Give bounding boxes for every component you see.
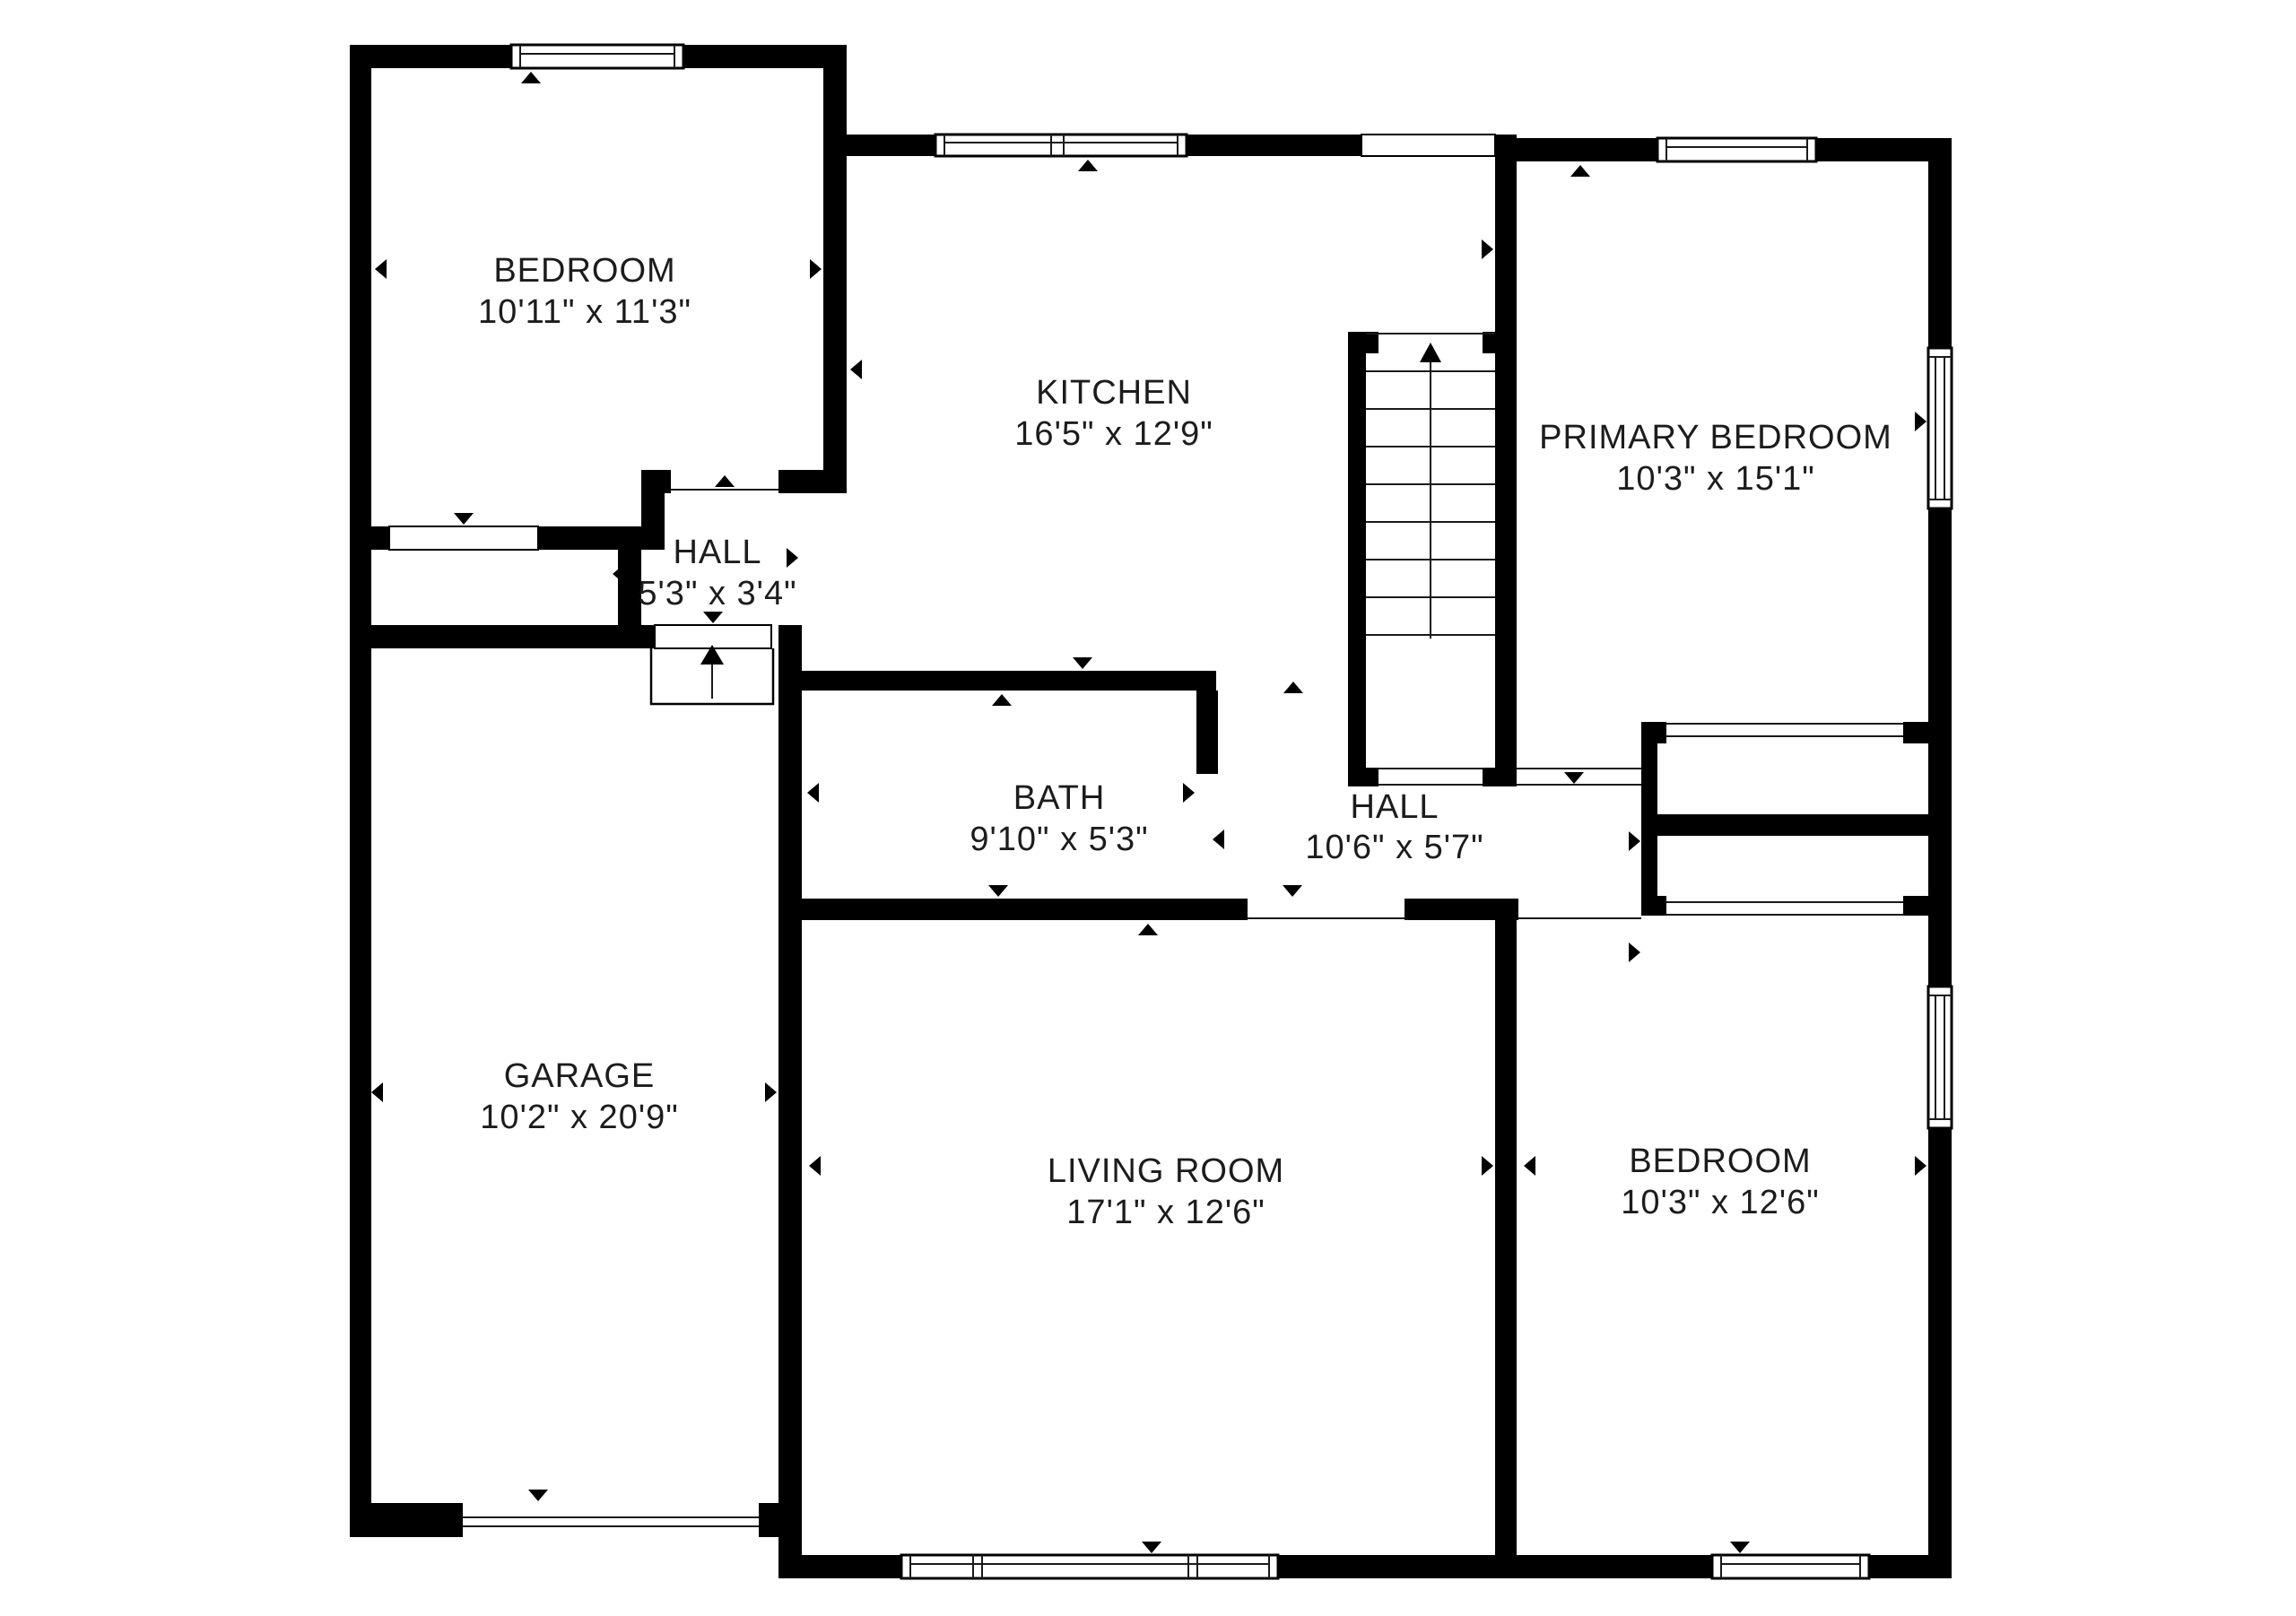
door-marker-icon (454, 513, 474, 525)
room-label-bath-name: BATH (1013, 779, 1106, 817)
window-bedroom-tl-top (511, 45, 683, 68)
wall-closet-divider (1657, 814, 1928, 836)
door-marker-icon (1482, 239, 1493, 259)
window-kitchen-top (935, 135, 1187, 156)
wall-garage-top (350, 625, 655, 648)
wall-bedroom-tl-top-b (683, 45, 847, 68)
room-label-bedroom-tl-dims: 10'11" x 11'3" (478, 293, 691, 331)
door-marker-icon (1629, 831, 1640, 851)
wall-stair-cap-right (1483, 768, 1517, 786)
door-marker-icon (528, 1490, 548, 1501)
room-label-bath-dims: 9'10" x 5'3" (970, 821, 1148, 858)
door-marker-icon (1283, 885, 1302, 897)
opening-hall-small-bottom (655, 625, 771, 648)
wall-kitchen-top-a (823, 135, 935, 156)
wall-stair-nub-right (1483, 332, 1495, 353)
opening-back-door (1361, 135, 1495, 156)
stairs (1366, 334, 1495, 639)
door-marker-icon (1564, 772, 1584, 784)
wall-bedroom-tl-lower-a (350, 526, 389, 550)
room-label-hall-main-name: HALL (1350, 788, 1439, 826)
wall-primary-left (1495, 135, 1517, 786)
wall-stair-nub-left (1366, 332, 1378, 353)
room-label-kitchen-name: KITCHEN (1036, 374, 1192, 412)
door-marker-icon (703, 612, 723, 623)
wall-closet-top-cap-right (1903, 722, 1928, 743)
wall-bedroom-tl-right (823, 45, 847, 493)
wall-closet-bottom-cap-left (1641, 896, 1666, 916)
wall-bedroom-tl-bottom-b (778, 470, 847, 493)
room-label-garage-dims: 10'2" x 20'9" (480, 1099, 678, 1136)
room-label-hall-small-name: HALL (673, 534, 761, 571)
wall-bath-right (1196, 691, 1218, 774)
door-marker-icon (810, 259, 822, 279)
door-marker-icon (787, 548, 798, 568)
entry-nook (651, 645, 773, 704)
room-label-bedroom-br-name: BEDROOM (1629, 1142, 1811, 1180)
window-primary-top (1657, 138, 1816, 161)
door-marker-icon (988, 885, 1008, 897)
window-marker-icon (1078, 160, 1098, 171)
wall-garage-bottom-b (759, 1503, 802, 1537)
wall-bedroom-br-left (1495, 899, 1517, 1578)
room-label-primary-bedroom-name: PRIMARY BEDROOM (1539, 419, 1892, 456)
entry-up-arrow-icon (700, 645, 724, 699)
wall-connector (641, 470, 665, 550)
wall-primary-top-a (1517, 138, 1657, 161)
wall-closet-bottom-cap-right (1903, 896, 1928, 916)
door-marker-icon (1570, 165, 1590, 177)
wall-closet-top-cap-left (1641, 722, 1666, 743)
window-bedroom-br-south (1712, 1555, 1869, 1578)
door-marker-icon (1915, 1156, 1926, 1176)
room-label-hall-main-dims: 10'6" x 5'7" (1305, 829, 1483, 866)
wall-south-b (1278, 1555, 1712, 1578)
wall-living-top-a (778, 899, 1248, 920)
room-label-bedroom-br-dims: 10'3" x 12'6" (1621, 1184, 1819, 1221)
door-marker-icon (809, 1156, 821, 1176)
stairs-up-arrow-icon (1420, 343, 1441, 639)
wall-outer-right-b (1928, 508, 1952, 986)
floorplan-canvas: BEDROOM 10'11" x 11'3" KITCHEN 16'5" x 1… (0, 0, 2296, 1616)
windows (511, 45, 1952, 1578)
door-marker-icon (992, 694, 1012, 706)
wall-closet-west (1641, 722, 1657, 912)
wall-stair-left (1348, 332, 1366, 785)
door-marker-icon (1183, 783, 1195, 803)
door-marker-icon (375, 259, 387, 279)
door-marker-icon (807, 783, 819, 803)
door-marker-icon (1629, 943, 1640, 962)
wall-outer-right-a (1928, 138, 1952, 348)
wall-bedroom-tl-top-a (350, 45, 511, 68)
window-marker-icon (1730, 1542, 1750, 1553)
room-label-hall-small-dims: 5'3" x 3'4" (638, 575, 796, 613)
window-living-south (901, 1555, 1278, 1578)
wall-bedroom-tl-lower-b (538, 526, 641, 550)
window-primary-right (1928, 348, 1952, 508)
door-marker-icon (1138, 924, 1158, 935)
wall-primary-top-b (1816, 138, 1952, 161)
wall-outer-left (350, 45, 371, 1537)
window-bedroom-br-right (1928, 986, 1952, 1128)
door-marker-icon (715, 475, 735, 487)
room-label-bedroom-tl-name: BEDROOM (493, 252, 675, 290)
window-marker-icon (521, 72, 541, 83)
window-marker-icon (1915, 412, 1926, 431)
door-marker-icon (765, 1082, 777, 1102)
wall-south-a (778, 1555, 901, 1578)
room-label-garage-name: GARAGE (504, 1057, 656, 1095)
room-label-primary-bedroom-dims: 10'3" x 15'1" (1616, 460, 1814, 498)
room-labels: BEDROOM 10'11" x 11'3" KITCHEN 16'5" x 1… (478, 252, 1892, 1231)
door-marker-icon (1073, 657, 1092, 669)
wall-stair-cap-left (1348, 768, 1378, 786)
room-label-living-room-name: LIVING ROOM (1048, 1152, 1284, 1190)
wall-garage-right (778, 625, 802, 1578)
door-marker-icon (850, 360, 862, 379)
door-marker-icon (1482, 1156, 1493, 1176)
opening-bedroom-tl-lower (389, 526, 538, 550)
wall-kitchen-top-b (1187, 135, 1361, 156)
wall-bath-top (802, 671, 1216, 691)
wall-south-c (1869, 1555, 1928, 1578)
wall-outer-right-c (1928, 1128, 1952, 1578)
door-marker-icon (1524, 1156, 1535, 1176)
wall-garage-bottom-a (350, 1503, 463, 1537)
room-label-kitchen-dims: 16'5" x 12'9" (1014, 415, 1213, 453)
window-marker-icon (1142, 1542, 1161, 1553)
door-marker-icon (1213, 830, 1224, 849)
room-label-living-room-dims: 17'1" x 12'6" (1066, 1194, 1265, 1231)
door-marker-icon (1283, 682, 1303, 693)
door-marker-icon (371, 1082, 383, 1102)
